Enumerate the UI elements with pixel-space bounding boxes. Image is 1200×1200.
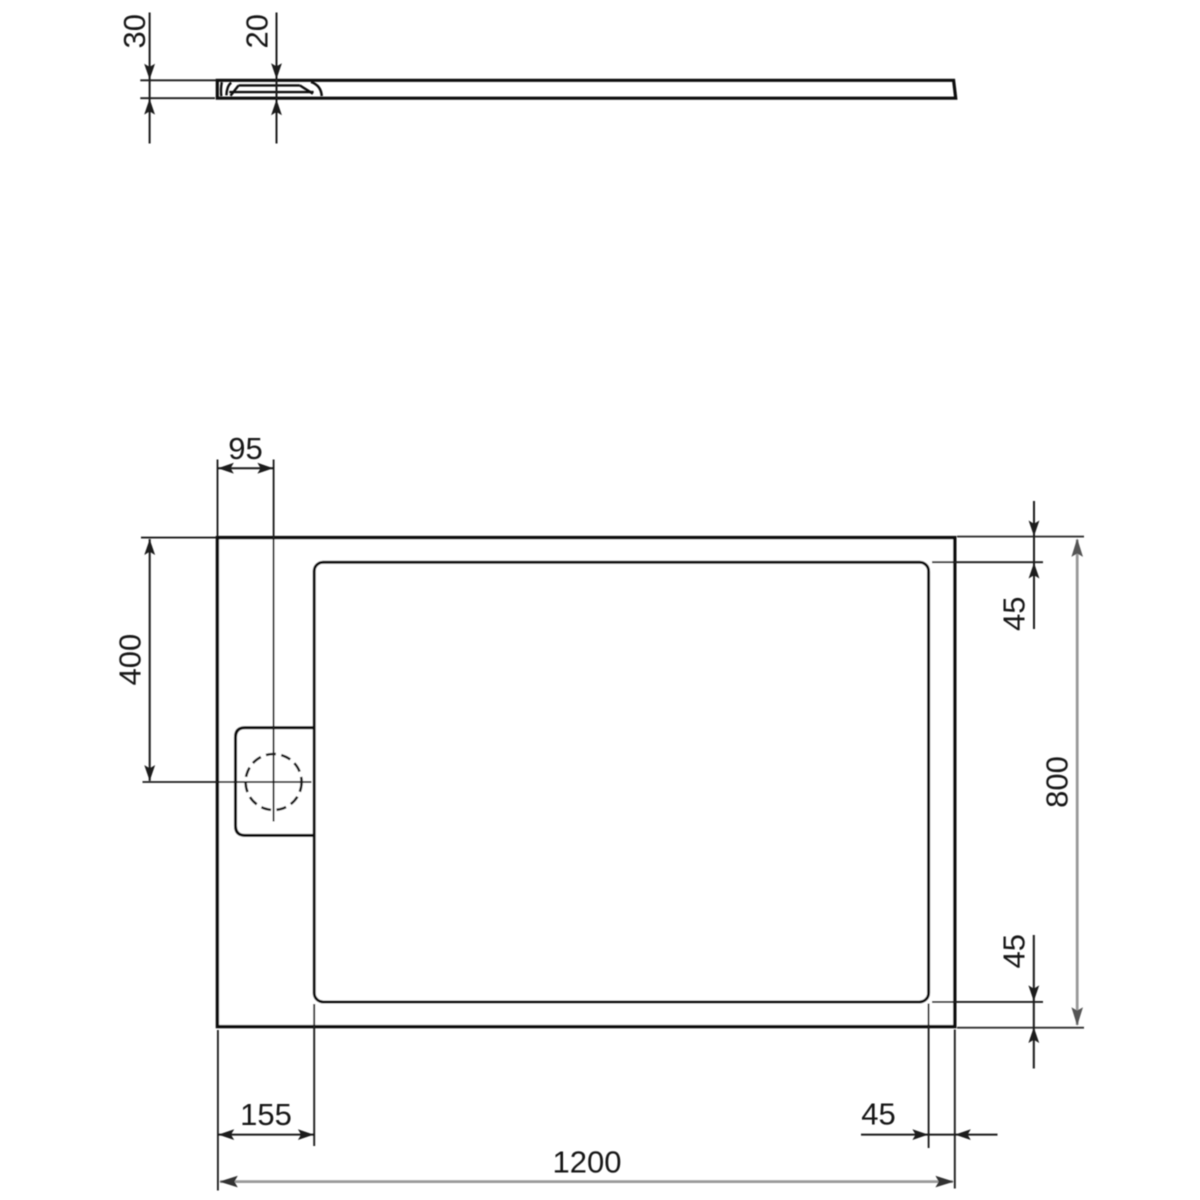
svg-text:1200: 1200 xyxy=(553,1145,622,1180)
svg-text:95: 95 xyxy=(228,431,262,466)
svg-text:800: 800 xyxy=(1040,756,1075,808)
svg-text:155: 155 xyxy=(240,1097,292,1132)
svg-text:20: 20 xyxy=(240,14,275,48)
svg-text:400: 400 xyxy=(113,634,148,686)
svg-text:30: 30 xyxy=(117,14,152,48)
svg-text:45: 45 xyxy=(997,597,1032,631)
svg-text:45: 45 xyxy=(861,1097,895,1132)
svg-text:45: 45 xyxy=(997,934,1032,968)
